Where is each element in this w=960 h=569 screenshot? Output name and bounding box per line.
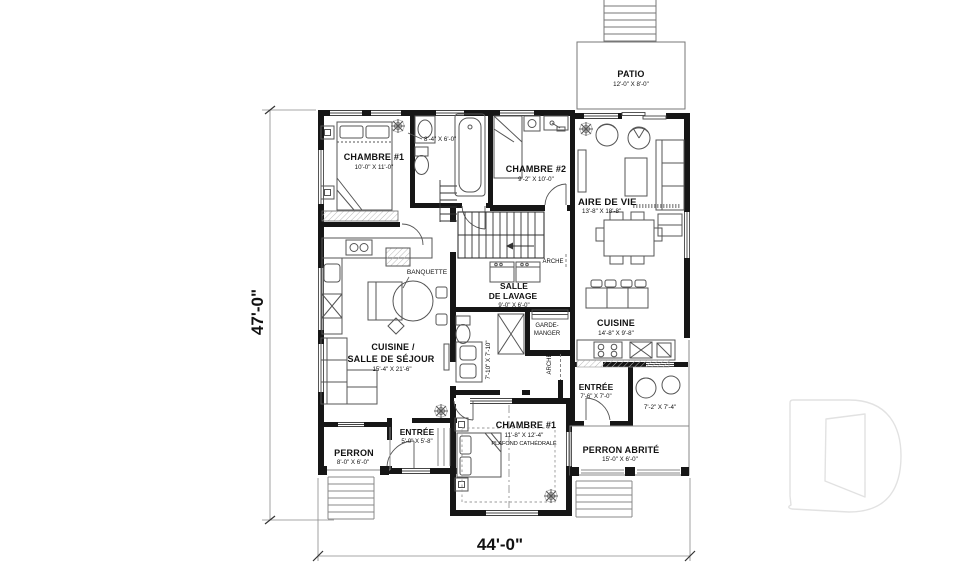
- dim-lavage: 9'-0" X 6'-0": [498, 303, 529, 309]
- label-garde-manger-2: MANGER: [534, 331, 561, 337]
- floor-plan-canvas: 47'-0" 44'-0": [0, 0, 960, 569]
- bathroom-top-fixtures: [415, 114, 486, 196]
- patio-structure: [577, 0, 685, 109]
- label-banquette: BANQUETTE: [407, 269, 448, 276]
- laundry-appliances: [490, 262, 540, 282]
- overall-height-dimension: 47'-0": [248, 289, 267, 335]
- dim-bath-top: 8'-4" X 6'-0": [424, 136, 456, 143]
- tv: [444, 344, 449, 370]
- closet-left-bedroom: [322, 211, 398, 221]
- label-arche-haut: ARCHE: [542, 259, 563, 265]
- label-chambre1-left: CHAMBRE #1: [344, 152, 405, 162]
- label-chambre1-bottom: CHAMBRE #1: [496, 420, 557, 430]
- label-arche-bas: ARCHE: [547, 353, 553, 374]
- dim-chambre2: 9'-2" X 10'-0": [518, 176, 554, 183]
- living-room-furniture: [578, 124, 684, 264]
- label-patio: PATIO: [617, 69, 644, 79]
- label-garde-manger-1: GARDE-: [535, 323, 558, 329]
- dim-chambre1-bottom: 11'-8" X 12'-4": [505, 432, 544, 439]
- note-chambre1-bottom: PLAFOND CATHÉDRALE: [491, 440, 556, 447]
- floor-plan-page: 47'-0" 44'-0": [0, 0, 960, 569]
- dim-bath-central: 7'-10" X 7'-10": [485, 340, 492, 379]
- label-cuisine-right: CUISINE: [597, 318, 635, 328]
- label-lavage-2: DE LAVAGE: [489, 291, 538, 301]
- dim-exterior-corner: 7'-2" X 7'-4": [644, 404, 676, 411]
- dim-aire-de-vie: 13'-8" X 18'-8": [582, 208, 621, 215]
- dim-cuisine-sejour: 15'-4" X 21'-6": [372, 366, 411, 373]
- label-chambre2: CHAMBRE #2: [506, 164, 567, 174]
- dim-chambre1-left: 10'-0" X 11'-0": [355, 164, 394, 171]
- dim-cuisine-right: 14'-8" X 9'-8": [598, 330, 634, 337]
- patio-sliding-door: [622, 112, 666, 120]
- perron-left-structure: [318, 427, 390, 519]
- label-cuisine-sejour-1: CUISINE /: [371, 342, 415, 352]
- label-entree-right: ENTRÉE: [579, 381, 614, 392]
- dim-perron: 8'-0" X 6'-0": [337, 459, 369, 466]
- label-lavage-1: SALLE: [500, 281, 528, 291]
- label-cuisine-sejour-2: SALLE DE SÉJOUR: [347, 354, 434, 364]
- dim-patio: 12'-0" X 8'-0": [613, 81, 649, 88]
- label-aire-de-vie: AIRE DE VIE: [578, 197, 637, 208]
- dim-entree-left: 5'-0" X 5'-8": [401, 439, 432, 445]
- banquette-furniture: [368, 281, 447, 334]
- letter-d-outline-icon: [789, 400, 901, 512]
- label-perron: PERRON: [334, 448, 374, 458]
- exterior-corner-chairs: [636, 376, 680, 398]
- entry-left-closet: [438, 428, 450, 466]
- dim-entree-right: 7'-6" X 7'-0": [580, 394, 611, 400]
- dim-perron-abrite: 15'-0" X 6'-0": [602, 456, 638, 463]
- overall-width-dimension: 44'-0": [477, 535, 523, 554]
- label-perron-abrite: PERRON ABRITÉ: [583, 445, 660, 455]
- label-entree-left: ENTRÉE: [400, 426, 435, 437]
